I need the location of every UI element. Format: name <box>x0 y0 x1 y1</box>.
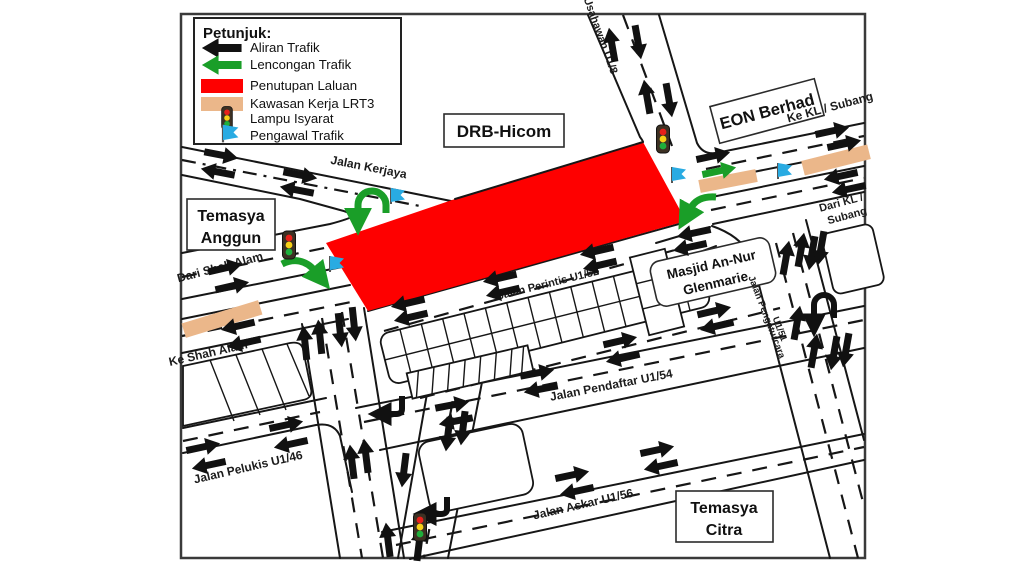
temasya-anggun-line2: Anggun <box>201 230 261 247</box>
legend: Petunjuk: Aliran Trafik Lencongan Trafik… <box>194 18 401 144</box>
red-swatch <box>201 79 243 93</box>
traffic-light-icon <box>283 231 296 259</box>
legend-item-label: Lampu Isyarat <box>250 111 334 126</box>
legend-item-label: Aliran Trafik <box>250 40 320 55</box>
traffic-plan-map: DRB-Hicom EON Berhad Temasya Anggun Masj… <box>0 0 1024 576</box>
temasya-citra-line2: Citra <box>706 522 743 539</box>
traffic-light-icon <box>414 513 427 541</box>
map-canvas: DRB-Hicom EON Berhad Temasya Anggun Masj… <box>0 0 1024 576</box>
legend-item-label: Penutupan Laluan <box>250 78 357 93</box>
temasya-citra-line1: Temasya <box>690 500 757 517</box>
drb-hicom-label: DRB-Hicom <box>457 122 551 141</box>
legend-item-label: Kawasan Kerja LRT3 <box>250 96 374 111</box>
legend-item-label: Lencongan Trafik <box>250 57 352 72</box>
temasya-anggun-line1: Temasya <box>197 208 264 225</box>
traffic-light-icon <box>657 125 670 153</box>
legend-item-label: Pengawal Trafik <box>250 128 344 143</box>
